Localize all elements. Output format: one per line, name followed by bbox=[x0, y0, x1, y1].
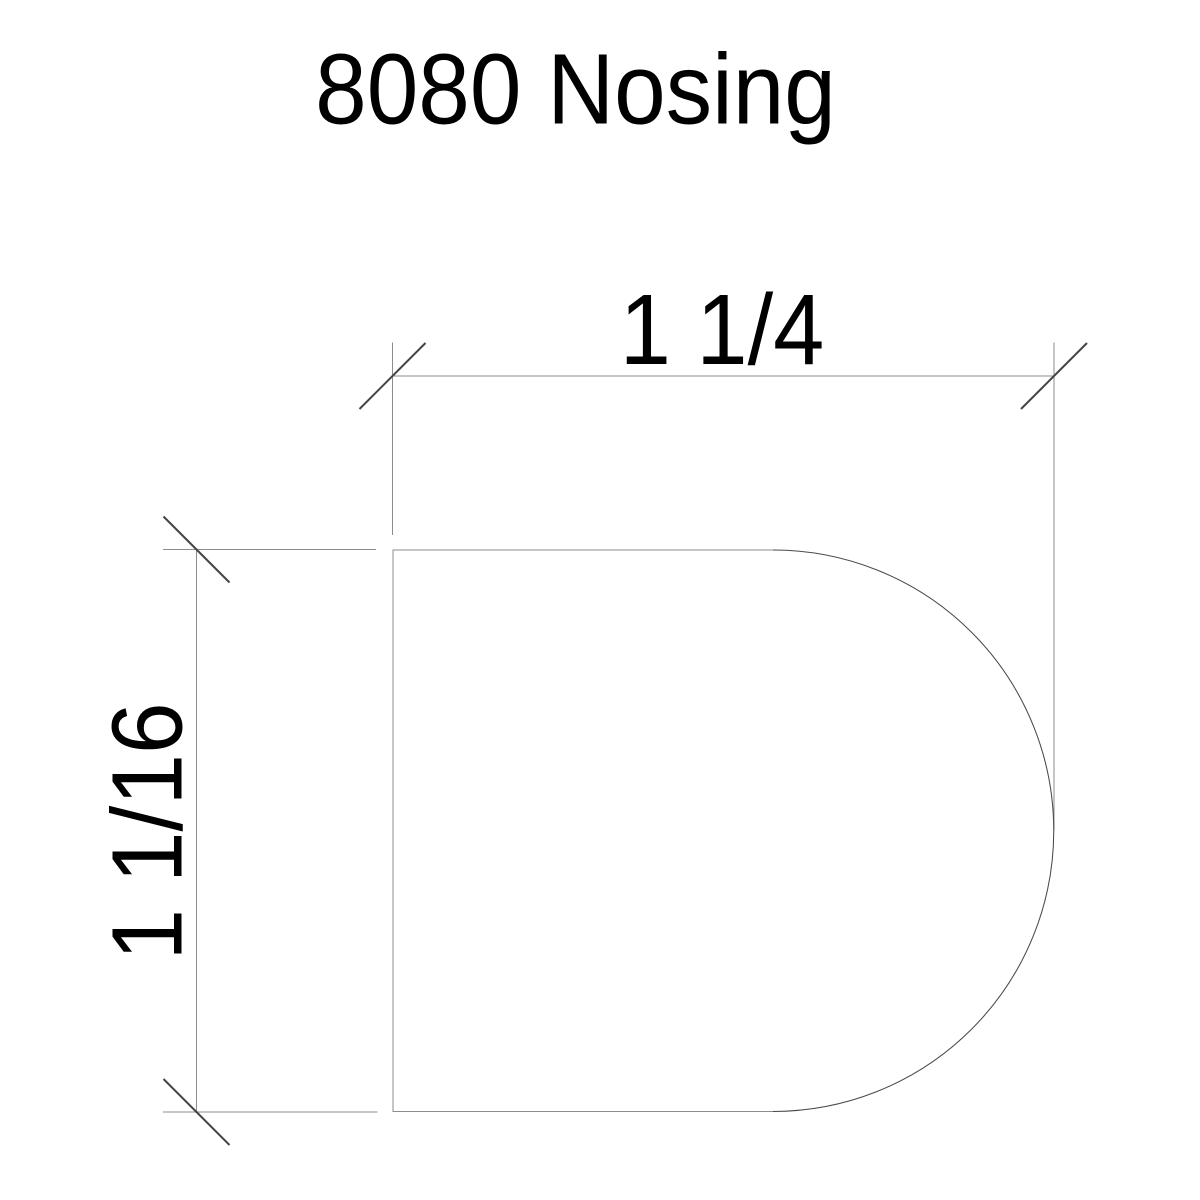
svg-text:1 1/4: 1 1/4 bbox=[620, 274, 825, 385]
svg-text:8080 Nosing: 8080 Nosing bbox=[315, 34, 836, 145]
svg-text:1 1/16: 1 1/16 bbox=[92, 702, 203, 960]
